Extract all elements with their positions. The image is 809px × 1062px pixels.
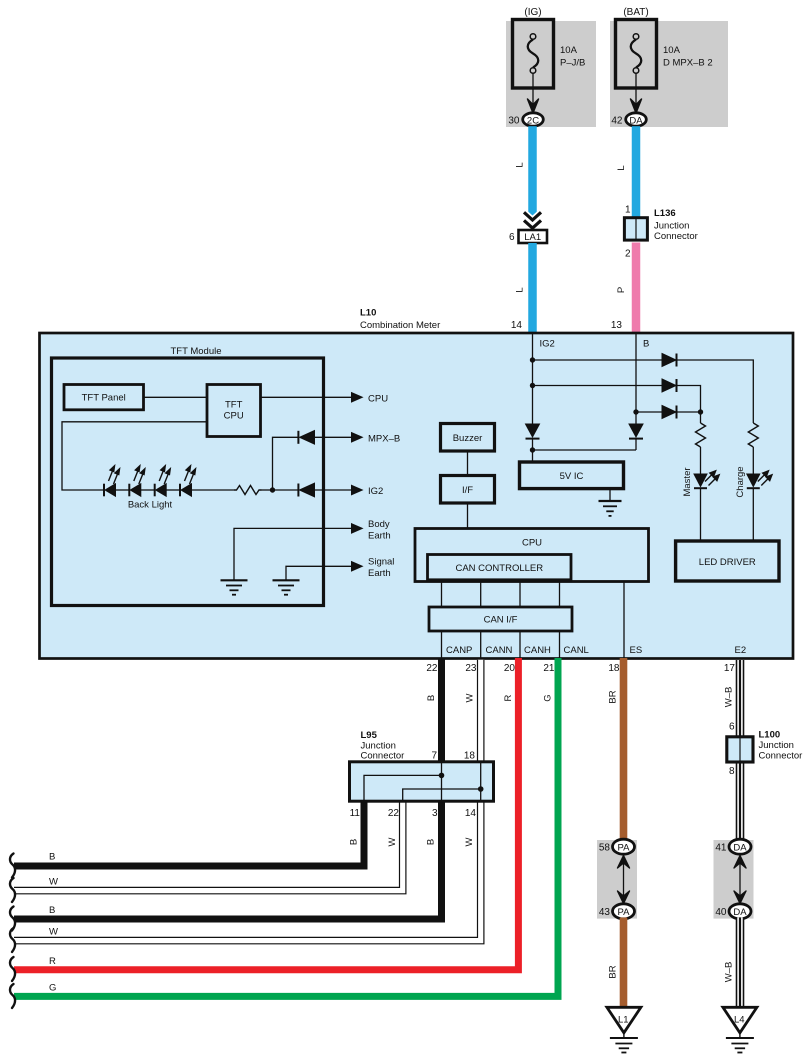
- svg-text:W: W: [465, 693, 476, 702]
- svg-text:13: 13: [611, 320, 623, 331]
- svg-text:22: 22: [426, 663, 438, 674]
- svg-text:IG2: IG2: [368, 486, 383, 497]
- svg-text:41: 41: [715, 843, 727, 854]
- svg-text:W: W: [387, 837, 398, 846]
- svg-text:L100: L100: [759, 730, 781, 741]
- svg-text:14: 14: [511, 320, 523, 331]
- svg-text:W: W: [49, 877, 58, 888]
- svg-text:20: 20: [504, 663, 516, 674]
- svg-text:Back Light: Back Light: [128, 500, 173, 511]
- svg-text:D MPX–B 2: D MPX–B 2: [663, 58, 713, 69]
- svg-text:2C: 2C: [527, 115, 539, 126]
- svg-text:10A: 10A: [560, 45, 578, 56]
- svg-text:Earth: Earth: [368, 568, 391, 579]
- svg-text:(BAT): (BAT): [623, 7, 648, 18]
- svg-text:2: 2: [625, 249, 631, 260]
- svg-text:LA1: LA1: [524, 232, 541, 243]
- svg-text:CAN I/F: CAN I/F: [484, 615, 518, 626]
- svg-text:17: 17: [724, 663, 736, 674]
- svg-text:B: B: [643, 339, 649, 350]
- svg-text:E2: E2: [735, 645, 747, 656]
- svg-text:R: R: [503, 694, 514, 701]
- svg-text:L4: L4: [734, 1015, 745, 1026]
- svg-text:L: L: [515, 162, 526, 167]
- svg-text:IG2: IG2: [540, 339, 555, 350]
- svg-text:Master: Master: [682, 467, 693, 496]
- svg-text:14: 14: [465, 808, 477, 819]
- svg-text:W–B: W–B: [724, 962, 735, 983]
- svg-text:L1: L1: [618, 1015, 629, 1026]
- svg-text:Connector: Connector: [759, 751, 803, 762]
- svg-text:BR: BR: [608, 690, 619, 703]
- svg-text:ES: ES: [630, 645, 643, 656]
- svg-text:7: 7: [431, 751, 437, 762]
- svg-text:5V IC: 5V IC: [560, 471, 584, 482]
- svg-text:6: 6: [509, 232, 515, 243]
- svg-text:CANP: CANP: [446, 645, 472, 656]
- svg-text:DA: DA: [629, 115, 643, 126]
- svg-text:Body: Body: [368, 519, 390, 530]
- svg-text:Earth: Earth: [368, 531, 391, 542]
- svg-text:LED DRIVER: LED DRIVER: [699, 557, 756, 568]
- svg-text:Buzzer: Buzzer: [453, 433, 483, 444]
- svg-text:43: 43: [599, 907, 611, 918]
- svg-text:Connector: Connector: [361, 751, 405, 762]
- svg-text:CANN: CANN: [486, 645, 513, 656]
- svg-text:L136: L136: [654, 208, 676, 219]
- svg-text:40: 40: [715, 907, 727, 918]
- svg-text:TFT Panel: TFT Panel: [82, 393, 126, 404]
- svg-text:CANL: CANL: [564, 645, 589, 656]
- svg-text:L: L: [515, 287, 526, 292]
- svg-text:R: R: [49, 956, 56, 967]
- svg-text:P: P: [616, 287, 627, 293]
- svg-text:CPU: CPU: [522, 538, 542, 549]
- svg-text:G: G: [543, 694, 554, 701]
- svg-text:L: L: [616, 165, 627, 170]
- svg-text:42: 42: [611, 116, 623, 127]
- svg-text:W–B: W–B: [724, 687, 735, 708]
- svg-text:B: B: [49, 852, 55, 863]
- svg-text:L95: L95: [361, 730, 378, 741]
- svg-text:PA: PA: [618, 907, 631, 918]
- svg-text:TFT: TFT: [225, 399, 243, 410]
- svg-text:TFT Module: TFT Module: [170, 346, 221, 357]
- svg-text:21: 21: [543, 663, 555, 674]
- svg-text:30: 30: [508, 116, 520, 127]
- svg-text:DA: DA: [733, 843, 747, 854]
- svg-text:W: W: [49, 927, 58, 938]
- svg-text:DA: DA: [733, 907, 747, 918]
- svg-text:23: 23: [465, 663, 477, 674]
- svg-text:Combination Meter: Combination Meter: [360, 320, 440, 331]
- svg-text:L10: L10: [360, 308, 376, 319]
- svg-text:3: 3: [432, 808, 438, 819]
- svg-text:PA: PA: [618, 843, 631, 854]
- svg-text:MPX–B: MPX–B: [368, 433, 400, 444]
- svg-text:I/F: I/F: [462, 485, 473, 496]
- svg-text:6: 6: [729, 722, 735, 733]
- svg-text:18: 18: [608, 663, 620, 674]
- svg-text:G: G: [49, 983, 56, 994]
- svg-text:8: 8: [729, 766, 735, 777]
- svg-text:BR: BR: [608, 965, 619, 978]
- svg-text:CPU: CPU: [224, 410, 244, 421]
- svg-text:11: 11: [350, 808, 361, 819]
- svg-text:1: 1: [625, 205, 631, 216]
- svg-text:Signal: Signal: [368, 557, 394, 568]
- svg-text:18: 18: [464, 751, 476, 762]
- svg-text:B: B: [349, 839, 360, 845]
- svg-text:Connector: Connector: [654, 231, 698, 242]
- svg-text:P–J/B: P–J/B: [560, 58, 585, 69]
- svg-text:58: 58: [599, 843, 611, 854]
- svg-text:22: 22: [388, 808, 400, 819]
- svg-text:B: B: [49, 905, 55, 916]
- svg-text:CANH: CANH: [524, 645, 551, 656]
- svg-text:10A: 10A: [663, 45, 681, 56]
- svg-text:B: B: [426, 695, 437, 701]
- svg-text:Junction: Junction: [759, 740, 794, 751]
- svg-text:B: B: [426, 839, 437, 845]
- svg-text:CPU: CPU: [368, 393, 388, 404]
- svg-text:Charge: Charge: [735, 466, 746, 497]
- svg-text:CAN CONTROLLER: CAN CONTROLLER: [455, 563, 543, 574]
- svg-text:(IG): (IG): [524, 7, 541, 18]
- svg-text:W: W: [464, 837, 475, 846]
